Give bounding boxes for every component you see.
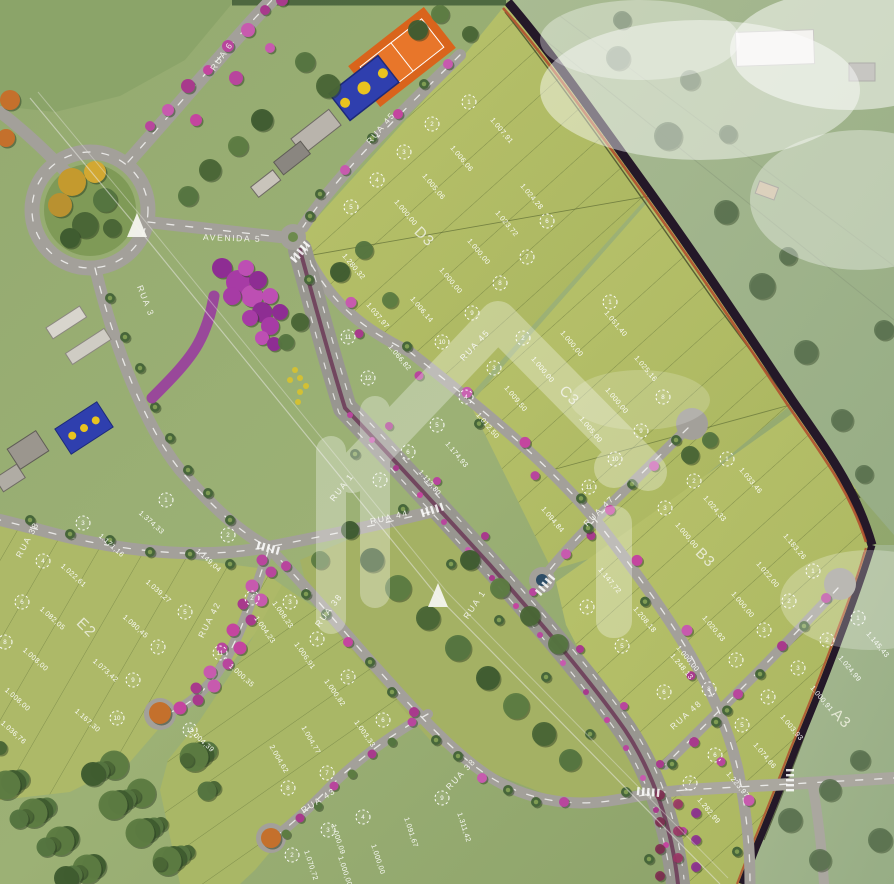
tree (382, 292, 398, 308)
tree (874, 320, 894, 340)
lot-number: 4 (375, 177, 379, 184)
tree (103, 219, 121, 237)
tree (520, 437, 531, 448)
tree (714, 200, 738, 224)
tree (193, 695, 204, 706)
palm-tree (188, 552, 193, 557)
tree (178, 186, 198, 206)
tree (99, 791, 128, 820)
tree (340, 165, 350, 175)
palm-tree (153, 405, 158, 410)
tree (343, 637, 353, 647)
tree (531, 471, 540, 480)
tree (238, 260, 254, 276)
tree (462, 26, 478, 42)
palm-tree (318, 192, 323, 197)
lot-number: 4 (41, 558, 45, 565)
lot-number: 9 (131, 677, 135, 684)
tree (190, 114, 202, 126)
tree (260, 5, 270, 15)
lot-number: 5 (740, 722, 744, 729)
tree (242, 310, 258, 326)
tree (204, 666, 217, 679)
tree (477, 773, 487, 783)
lot-number: 11 (217, 650, 224, 657)
lot-number: 7 (734, 657, 738, 664)
tree (60, 228, 80, 248)
tree (681, 446, 699, 464)
tree (656, 760, 664, 768)
tree (255, 331, 269, 345)
palm-tree (307, 277, 312, 282)
tree (257, 555, 268, 566)
flower-bed (295, 399, 301, 405)
lot-number: 2 (430, 121, 434, 128)
tree (809, 849, 831, 871)
palm-tree (304, 592, 309, 597)
median-shrub (441, 519, 447, 525)
tree (295, 52, 315, 72)
lot-number: 1 (725, 456, 729, 463)
median-shrub (417, 492, 423, 498)
tree (0, 90, 20, 110)
lot-number: 5 (435, 422, 439, 429)
tree (868, 828, 892, 852)
tree (632, 555, 643, 566)
tree (37, 838, 56, 857)
tree (559, 749, 581, 771)
lot-number: 5 (349, 204, 353, 211)
median-shrub (537, 632, 543, 638)
tree (208, 680, 221, 693)
tree (355, 329, 364, 338)
tree (481, 532, 489, 540)
lot-number: 2 (290, 852, 294, 859)
tree (689, 737, 699, 747)
lot-number: 3 (402, 149, 406, 156)
tree (223, 287, 241, 305)
lot-number: 3 (492, 365, 496, 372)
median-shrub (583, 689, 589, 695)
flower-bed (303, 383, 309, 389)
palm-tree (497, 618, 502, 623)
lot-number: 7 (688, 780, 692, 787)
lot-number: 9 (440, 795, 444, 802)
tree (348, 770, 357, 779)
flower-bed (297, 375, 303, 381)
tree (251, 109, 273, 131)
tree (266, 567, 277, 578)
tree (291, 313, 309, 331)
tree (691, 808, 701, 818)
palm-tree (714, 720, 719, 725)
tree (443, 59, 453, 69)
median-shrub (653, 807, 659, 813)
tree (503, 693, 529, 719)
lot-number: 2 (787, 598, 791, 605)
lot-number: 6 (381, 717, 385, 724)
lot-number: 3 (288, 599, 292, 606)
tree (153, 857, 167, 871)
lot-number: 10 (114, 715, 121, 722)
palm-tree (434, 738, 439, 743)
tree (228, 136, 248, 156)
tree (850, 750, 870, 770)
median-shrub (513, 603, 519, 609)
lot-number: 5 (346, 674, 350, 681)
lot-number: 8 (498, 280, 502, 287)
tree (278, 334, 294, 350)
palm-tree (674, 438, 679, 443)
palm-tree (390, 690, 395, 695)
palm-tree (206, 491, 211, 496)
flower-bed (292, 367, 298, 373)
tree (355, 241, 373, 259)
tree (777, 641, 787, 651)
palm-tree (308, 214, 313, 219)
tree (490, 578, 510, 598)
tree (126, 819, 155, 848)
lot-number: 4 (315, 636, 319, 643)
palm-tree (735, 849, 740, 854)
tree (261, 828, 281, 848)
palm-tree (643, 599, 648, 604)
tree (265, 43, 275, 53)
tree (234, 642, 247, 655)
median-shrub (604, 717, 610, 723)
tree (445, 635, 471, 661)
palm-tree (670, 762, 675, 767)
lot-number: 3 (796, 665, 800, 672)
tree (149, 702, 171, 724)
tree (282, 830, 291, 839)
lot-number: 8 (286, 785, 290, 792)
palm-tree (534, 800, 539, 805)
palm-tree (123, 335, 128, 340)
tree (682, 625, 693, 636)
tree (559, 797, 569, 807)
lot-number: 7 (156, 644, 160, 651)
cloud-haze (540, 0, 740, 80)
median-shrub (393, 465, 399, 471)
tree (855, 465, 873, 483)
tree (199, 159, 221, 181)
tree (145, 121, 155, 131)
tree (794, 340, 818, 364)
tree (529, 588, 537, 596)
lot-number: 4 (464, 394, 468, 401)
lot-number: 4 (585, 604, 589, 611)
tree (281, 561, 291, 571)
flower-bed (297, 389, 303, 395)
tree (316, 74, 340, 98)
palm-tree (108, 296, 113, 301)
tree (58, 168, 86, 196)
lot-number: 6 (406, 449, 410, 456)
palm-tree (138, 366, 143, 371)
flower-bed (287, 377, 293, 383)
tree (733, 689, 743, 699)
tree (249, 271, 267, 289)
lot-number: 12 (365, 375, 372, 382)
tree (227, 624, 240, 637)
tree (162, 104, 174, 116)
tree (655, 817, 665, 827)
tree (620, 702, 628, 710)
tree (84, 161, 106, 183)
median-shrub (560, 660, 566, 666)
lot-number: 2 (250, 595, 254, 602)
palm-tree (168, 436, 173, 441)
lot-number: 4 (766, 694, 770, 701)
tree (532, 722, 556, 746)
palm-tree (368, 660, 373, 665)
tree (198, 782, 217, 801)
lot-number: 1 (164, 497, 168, 504)
tree (93, 188, 117, 212)
lot-number: 5 (620, 643, 624, 650)
tree (181, 79, 195, 93)
tree (241, 23, 255, 37)
tree (180, 753, 194, 767)
tree (691, 835, 701, 845)
palm-tree (148, 550, 153, 555)
tree (272, 304, 288, 320)
tree (778, 808, 802, 832)
lot-number: 3 (81, 520, 85, 527)
lot-number: 8 (707, 686, 711, 693)
palm-tree (456, 754, 461, 759)
tree (388, 738, 397, 747)
lot-number: 1 (467, 99, 471, 106)
lot-number: 6 (662, 689, 666, 696)
lot-number: 11 (586, 484, 593, 491)
lot-number: 1 (856, 615, 860, 622)
lot-number: 3 (762, 627, 766, 634)
median-shrub (640, 775, 646, 781)
lot-number: 6 (20, 599, 24, 606)
palm-tree (422, 82, 427, 87)
palm-tree (506, 788, 511, 793)
tree (174, 702, 187, 715)
watermark-i-stem (596, 506, 632, 638)
tree (655, 844, 665, 854)
tree (368, 750, 377, 759)
tree (655, 871, 665, 881)
tree (416, 606, 440, 630)
tree (520, 606, 540, 626)
tree (576, 645, 584, 653)
lot-number: 7 (525, 254, 529, 261)
median-shrub (623, 745, 629, 751)
lot-number: 11 (345, 334, 352, 341)
tree (262, 288, 278, 304)
palm-tree (544, 675, 549, 680)
tree (749, 273, 775, 299)
palm-tree (405, 344, 410, 349)
tree (673, 853, 683, 863)
tree (476, 666, 500, 690)
masterplan-map: RUA 6AVENIDA 5RUA 3RUA 45RUA 45RUA 1RUA … (0, 0, 894, 884)
palm-tree (647, 857, 652, 862)
tree (831, 409, 853, 431)
palm-tree (725, 708, 730, 713)
tree (655, 790, 665, 800)
tree (548, 634, 568, 654)
tree (673, 799, 683, 809)
tree (431, 5, 449, 23)
lot-number: 1 (811, 568, 815, 575)
tree (409, 707, 419, 717)
watermark-i-dot (594, 448, 634, 488)
lot-number: 9 (639, 428, 643, 435)
lot-number: 1 (608, 299, 612, 306)
tree (10, 810, 29, 829)
palm-tree (228, 518, 233, 523)
lot-number: 10 (439, 339, 446, 346)
tree (819, 779, 841, 801)
palm-tree (186, 468, 191, 473)
palm-tree (449, 562, 454, 567)
lot-number: 9 (470, 310, 474, 317)
lot-number: 2 (825, 637, 829, 644)
tree (408, 20, 428, 40)
palm-tree (68, 532, 73, 537)
lot-number: 3 (663, 505, 667, 512)
tree (191, 683, 202, 694)
lot-number: 8 (3, 639, 7, 646)
palm-tree (758, 672, 763, 677)
lot-number: 8 (661, 394, 665, 401)
masterplan-svg: RUA 6AVENIDA 5RUA 3RUA 45RUA 45RUA 1RUA … (0, 0, 894, 884)
lot-number: 2 (226, 532, 230, 539)
lot-number: 6 (713, 752, 717, 759)
street-label: AVENIDA 5 (203, 232, 262, 244)
tree (346, 297, 357, 308)
median-shrub (347, 412, 353, 418)
tree (81, 762, 105, 786)
tree (702, 432, 718, 448)
lot-number: 3 (326, 827, 330, 834)
lot-number: 2 (692, 478, 696, 485)
lot-number: 6 (545, 218, 549, 225)
palm-tree (579, 496, 584, 501)
lot-number: 5 (183, 609, 187, 616)
tree (561, 549, 571, 559)
tree (460, 550, 480, 570)
palm-tree (228, 562, 233, 567)
tree (408, 718, 417, 727)
tree (48, 193, 72, 217)
tree (229, 71, 243, 85)
lot-number: 7 (325, 770, 329, 777)
lot-number: 4 (361, 814, 365, 821)
